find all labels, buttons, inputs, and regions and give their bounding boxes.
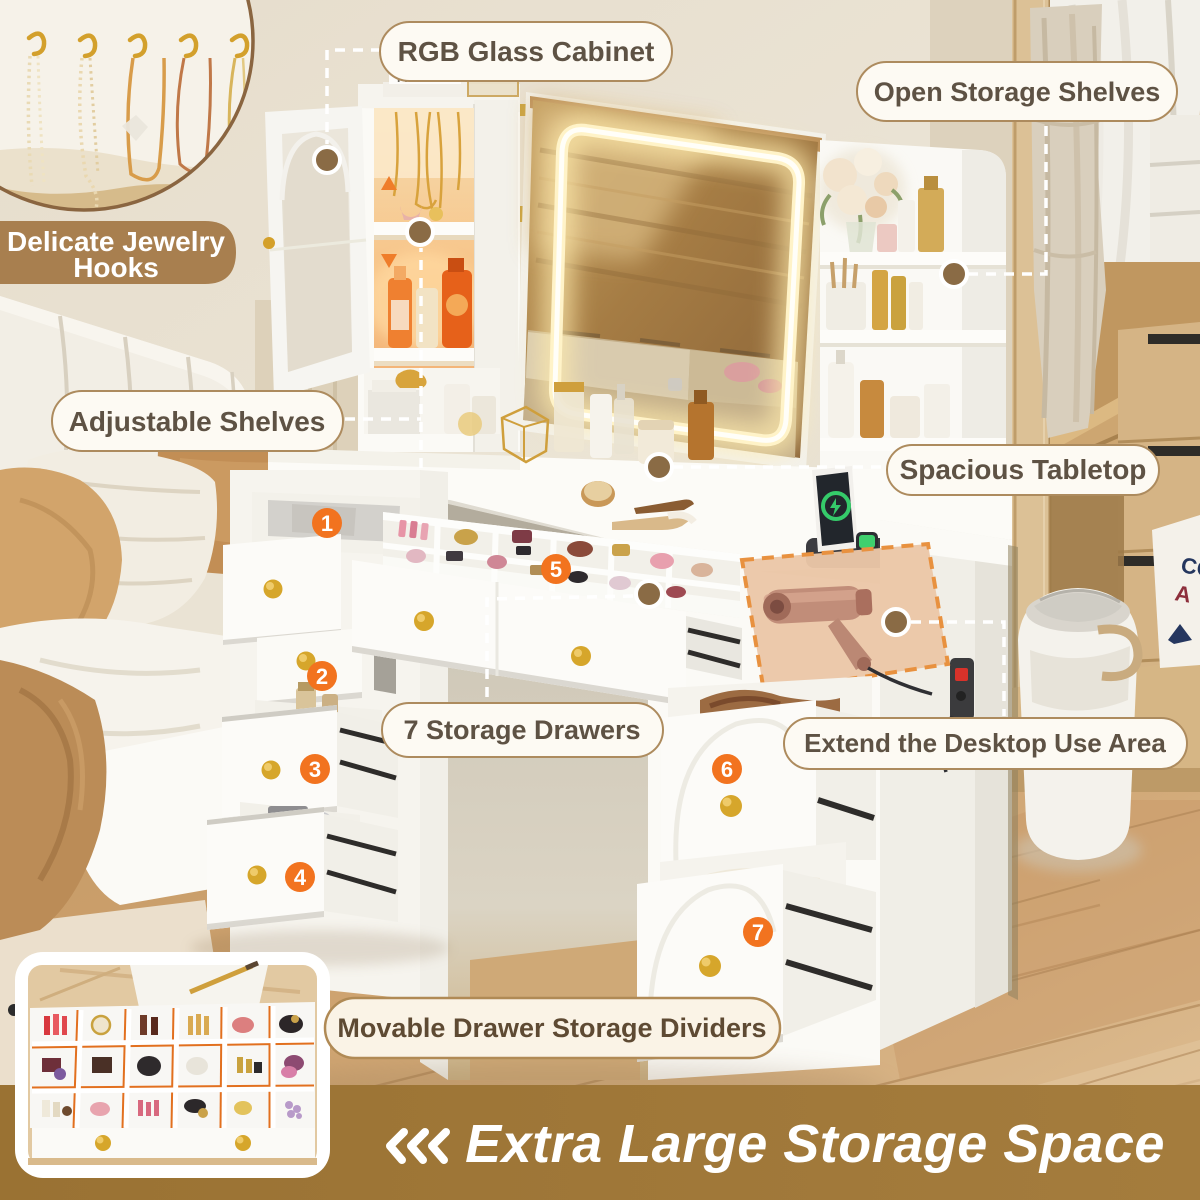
svg-text:Spacious Tabletop: Spacious Tabletop [900,454,1147,485]
svg-text:7 Storage Drawers: 7 Storage Drawers [403,715,640,745]
svg-text:Hooks: Hooks [73,252,159,283]
svg-text:6: 6 [721,757,733,782]
svg-text:5: 5 [550,557,562,582]
svg-text:3: 3 [309,757,321,782]
svg-text:Adjustable Shelves: Adjustable Shelves [69,406,326,437]
svg-text:2: 2 [316,664,328,689]
svg-text:Extra Large Storage Space: Extra Large Storage Space [465,1114,1165,1174]
svg-text:Extend the Desktop Use Area: Extend the Desktop Use Area [804,728,1166,758]
svg-text:Open Storage Shelves: Open Storage Shelves [874,77,1161,107]
svg-text:4: 4 [294,865,307,890]
svg-text:Movable Drawer Storage Divider: Movable Drawer Storage Dividers [337,1013,766,1043]
svg-text:7: 7 [752,920,764,945]
svg-text:RGB Glass Cabinet: RGB Glass Cabinet [398,36,655,67]
svg-text:1: 1 [321,511,333,536]
